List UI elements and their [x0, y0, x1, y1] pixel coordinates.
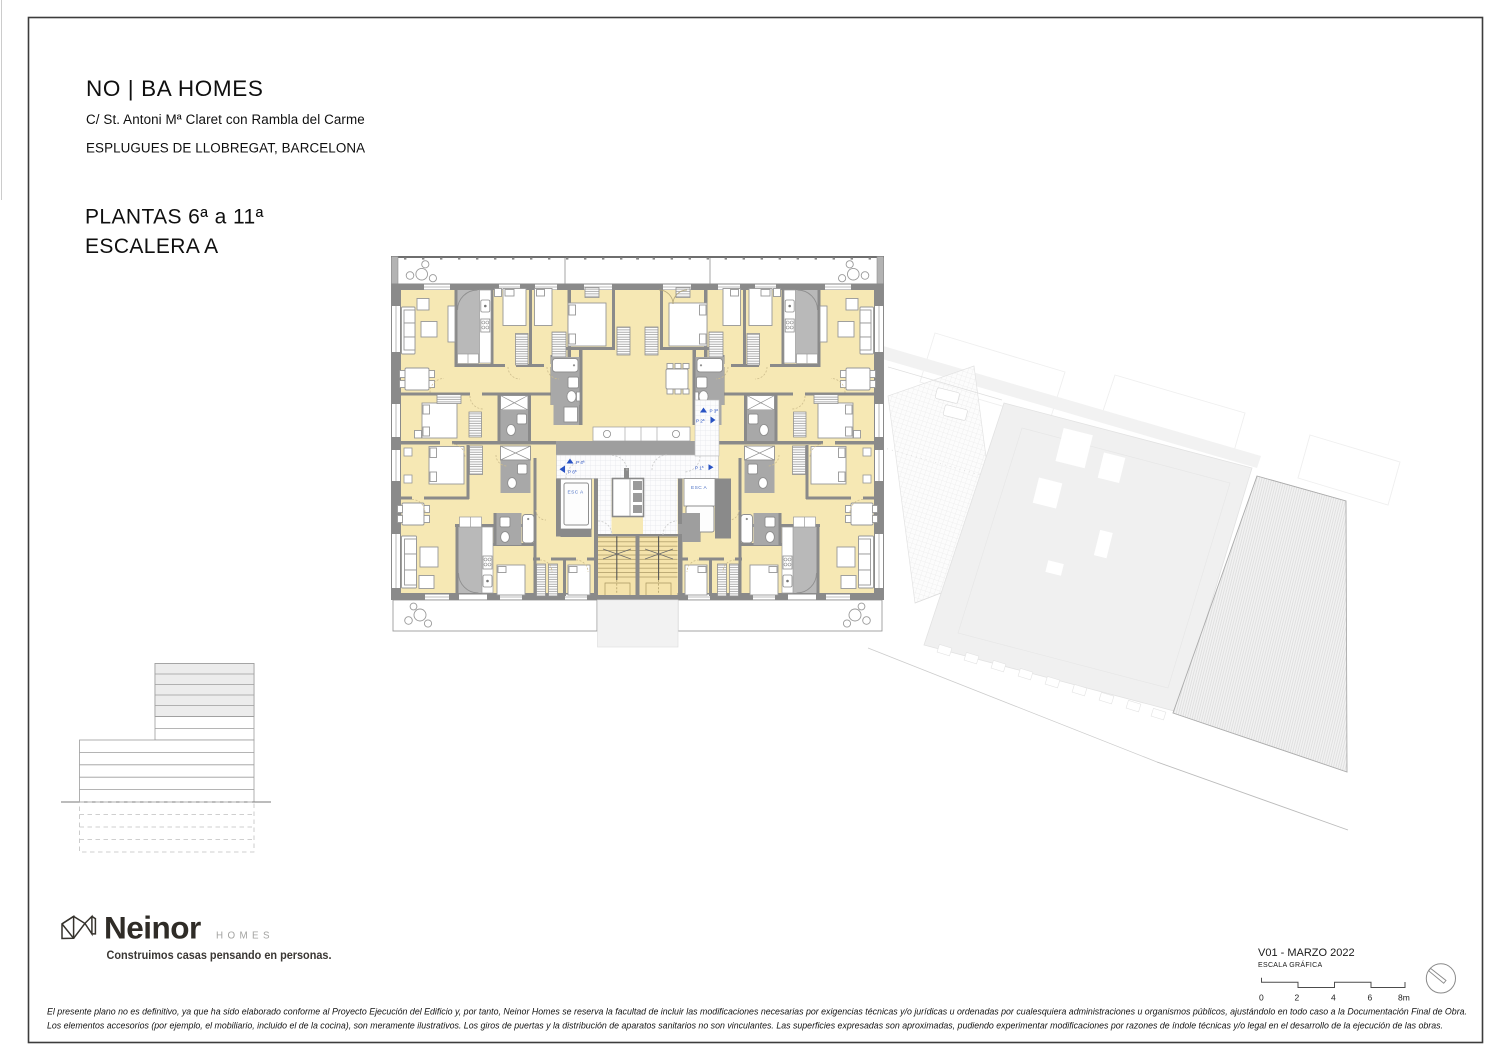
- svg-text:8m: 8m: [1398, 993, 1410, 1003]
- svg-text:P 1ª: P 1ª: [695, 466, 704, 471]
- svg-text:El presente plano no es defini: El presente plano no es definitivo, ya q…: [47, 1007, 1467, 1017]
- svg-text:C/ St. Antoni Mª Claret con Ra: C/ St. Antoni Mª Claret con Rambla del C…: [86, 112, 365, 127]
- svg-text:P 6ª: P 6ª: [568, 470, 577, 475]
- svg-text:P 2ª: P 2ª: [696, 419, 705, 424]
- svg-text:2: 2: [1295, 993, 1300, 1003]
- svg-text:ESPLUGUES DE LLOBREGAT, BARCEL: ESPLUGUES DE LLOBREGAT, BARCELONA: [86, 141, 365, 156]
- svg-text:4: 4: [1331, 993, 1336, 1003]
- svg-text:PLANTAS 6ª a 11ª: PLANTAS 6ª a 11ª: [85, 206, 264, 229]
- svg-text:Construimos casas pensando en: Construimos casas pensando en personas.: [107, 948, 332, 962]
- svg-text:6: 6: [1368, 993, 1373, 1003]
- svg-text:Neinor: Neinor: [104, 910, 201, 946]
- svg-text:ESC A: ESC A: [691, 485, 708, 491]
- svg-text:0: 0: [1259, 993, 1264, 1003]
- svg-text:ESC A: ESC A: [568, 490, 585, 496]
- svg-text:ESCALERA A: ESCALERA A: [85, 235, 219, 258]
- svg-text:Los elementos accesorios (por: Los elementos accesorios (por ejemplo, e…: [47, 1021, 1443, 1031]
- svg-text:P 4ª: P 4ª: [576, 460, 585, 465]
- svg-text:HOMES: HOMES: [216, 931, 274, 942]
- svg-text:P 3ª: P 3ª: [710, 409, 719, 414]
- svg-text:ESCALA GRÁFICA: ESCALA GRÁFICA: [1258, 960, 1323, 969]
- svg-text:V01 - MARZO 2022: V01 - MARZO 2022: [1258, 947, 1355, 959]
- svg-text:NO | BA HOMES: NO | BA HOMES: [86, 76, 263, 101]
